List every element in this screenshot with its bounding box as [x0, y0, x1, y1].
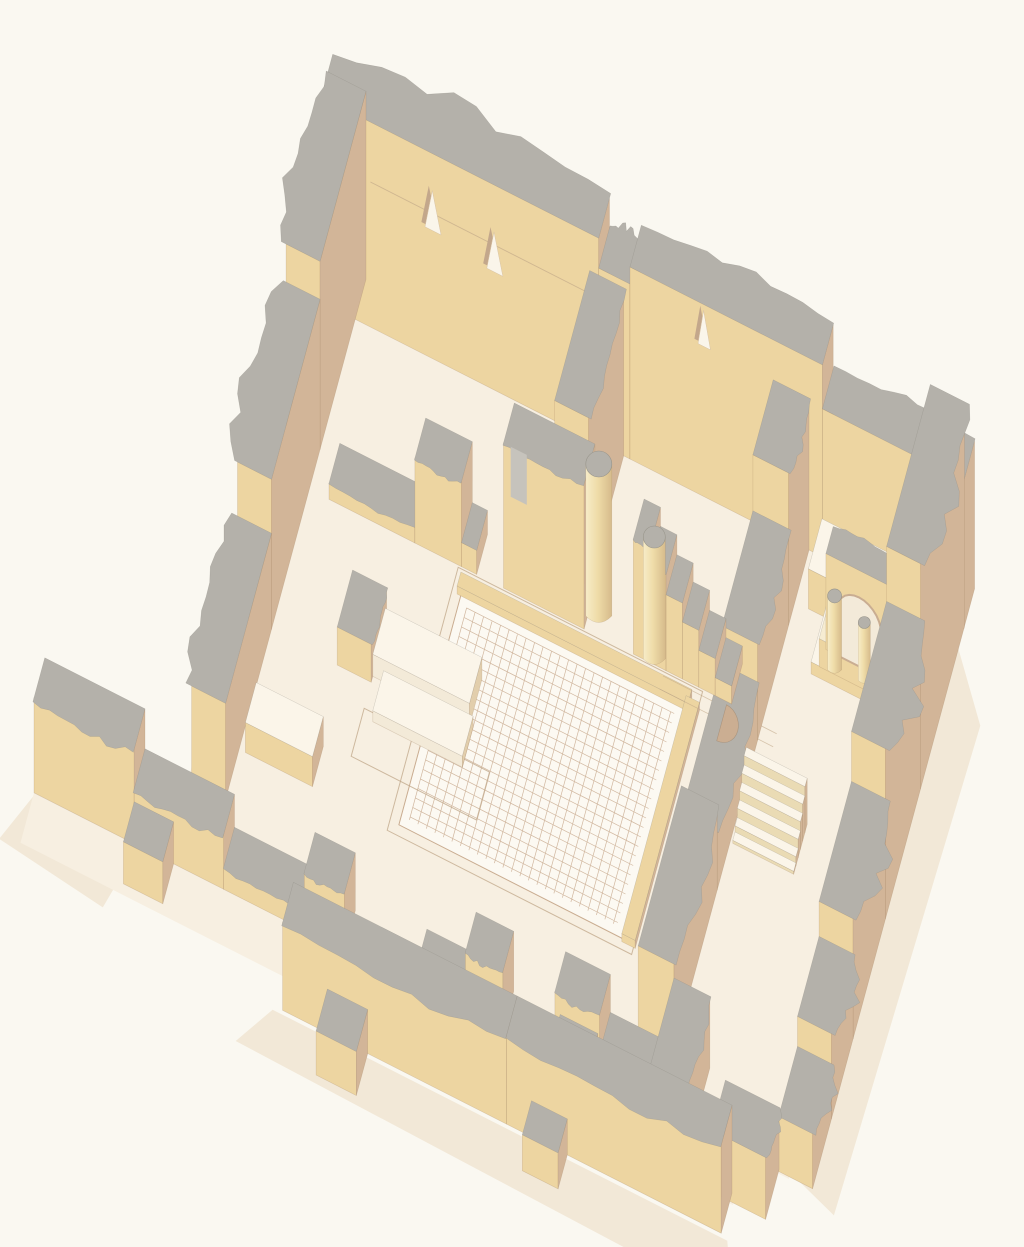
axonometric-ruin-drawing [0, 0, 1024, 1247]
aedicula-column-left [828, 589, 842, 674]
axonometric-ruin-svg [0, 0, 1024, 1247]
column-1 [586, 451, 612, 623]
column-2 [643, 526, 665, 665]
court-north-wall-window [511, 447, 527, 505]
